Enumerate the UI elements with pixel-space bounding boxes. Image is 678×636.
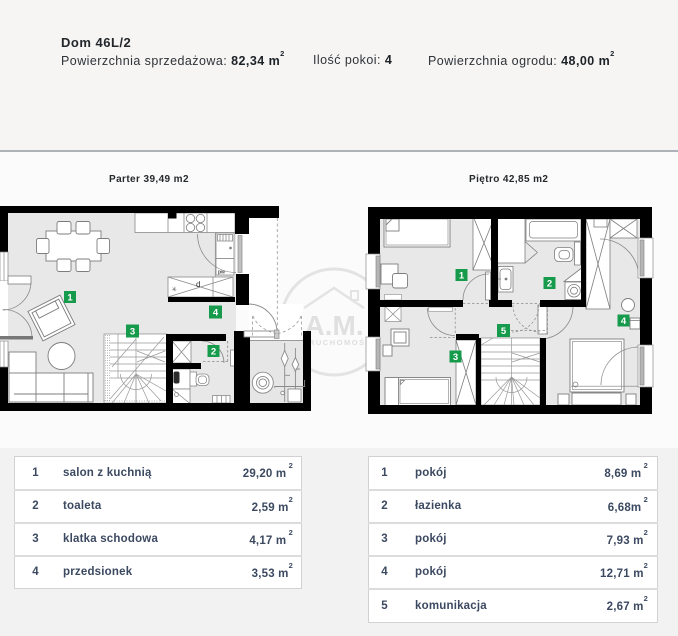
svg-text:4: 4: [213, 308, 219, 319]
svg-text:1: 1: [459, 271, 465, 282]
svg-text:3: 3: [130, 327, 135, 338]
svg-text:d: d: [196, 280, 200, 289]
svg-text:4: 4: [621, 316, 627, 327]
svg-text:2: 2: [547, 279, 552, 290]
svg-text:A.M.: A.M.: [304, 310, 363, 341]
svg-text:3: 3: [453, 352, 458, 363]
svg-text:5: 5: [501, 326, 507, 337]
svg-text:✳: ✳: [172, 286, 178, 294]
svg-text:2: 2: [211, 347, 216, 358]
svg-text:1: 1: [67, 293, 73, 304]
